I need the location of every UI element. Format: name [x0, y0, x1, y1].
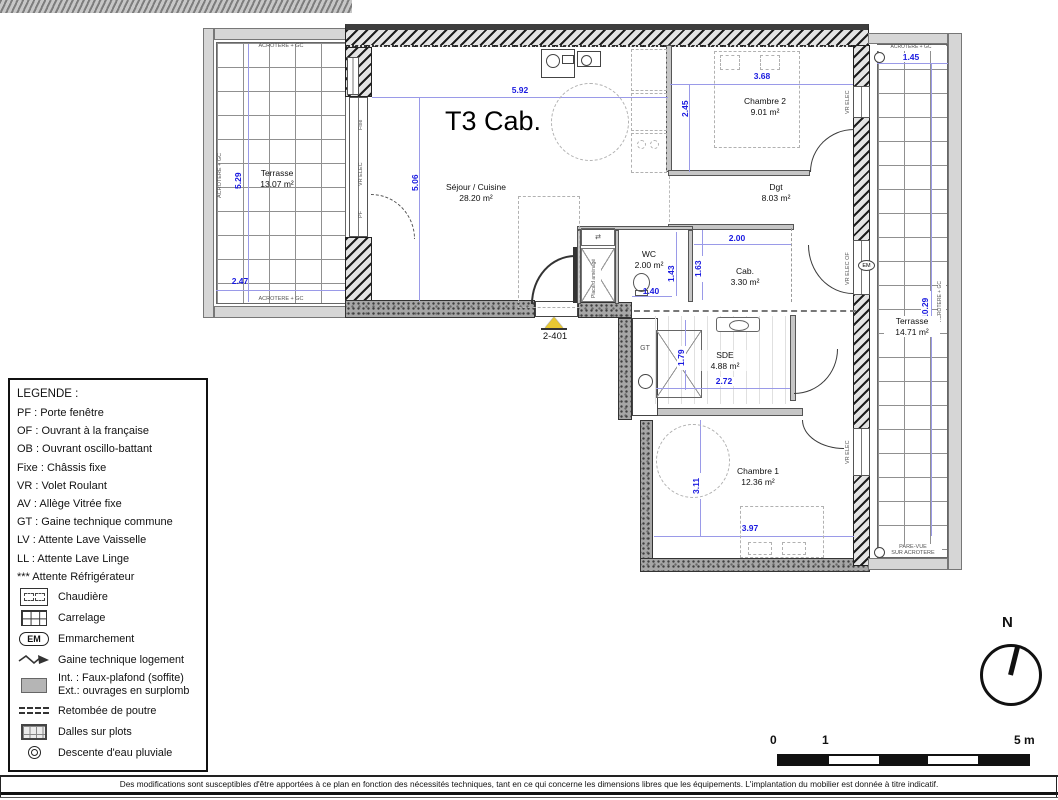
pf-door-swing: [371, 194, 415, 239]
west-terrace-parapet-top: [214, 28, 348, 40]
dim-chambre2-h: 2.45: [681, 96, 690, 122]
west-small-window: [347, 57, 359, 95]
boiler: [541, 49, 575, 78]
west-terrace-parapet-left: [203, 28, 214, 318]
footer-left-tick: [0, 776, 1, 797]
hob-burner: [637, 140, 646, 149]
wall-west-gt: [618, 318, 632, 420]
wall-east: [853, 45, 870, 566]
east-terrace-label: Terrasse 14.71 m²: [884, 316, 940, 337]
legend-item: PF : Porte fenêtre: [17, 404, 199, 422]
wall-south-chambre1: [640, 558, 870, 572]
dim-line: [676, 232, 677, 296]
cab-label: Cab. 3.30 m²: [722, 266, 768, 287]
pillow: [760, 55, 780, 70]
soffit-zone: [518, 196, 580, 308]
chambre1-window: [853, 428, 870, 476]
sejour-dgt-soffit-line: [669, 176, 670, 222]
scale-bar: [777, 754, 1030, 766]
dim-sejour-h: 5.06: [411, 168, 422, 198]
duct-icon: [17, 653, 51, 666]
dim-line: [632, 296, 672, 297]
dim-line: [877, 63, 948, 64]
kitchen-unit-2: [631, 93, 667, 131]
east-terrace-parapet-right: [948, 33, 962, 570]
dim-line: [694, 244, 791, 245]
terrace-door-label: VR ELEC OF: [845, 248, 853, 290]
north-label: N: [1002, 614, 1013, 631]
legend-symbol-row: EM Emmarchement: [17, 628, 199, 649]
legend-symbol-row: Descente d'eau pluviale: [17, 742, 199, 763]
wall-sde-chambre1: [653, 408, 803, 416]
placard-shelf: ⇄: [581, 228, 615, 246]
legend-box: LEGENDE : PF : Porte fenêtre OF : Ouvran…: [8, 378, 208, 772]
dim-sde-h: 1.79: [677, 346, 686, 370]
legend-symbol-row: Gaine technique logement: [17, 649, 199, 670]
legend-item: LV : Attente Lave Vaisselle: [17, 531, 199, 549]
legend-item: *** Attente Réfrigérateur: [17, 568, 199, 586]
em-badge: EM: [858, 260, 875, 271]
wc-label: WC 2.00 m²: [628, 249, 670, 270]
footer-top-rule: [0, 775, 1058, 777]
step-icon: EM: [17, 632, 51, 646]
chambre2-window-label: VR ELEC: [845, 84, 853, 120]
dim-line: [372, 97, 668, 98]
downpipe-symbol: [638, 374, 653, 389]
pare-vue-label: PARE-VUE SUR ACROTERE: [884, 544, 942, 557]
legend-symbol-row: Dalles sur plots: [17, 721, 199, 742]
acrotere-label-east: ACROTERE + GC: [876, 45, 946, 51]
pillow: [782, 542, 806, 555]
wall-south-entry: [578, 302, 632, 318]
chambre1-door-swing: [802, 420, 844, 449]
kitchen-sink: [577, 51, 601, 67]
beam-dashed-line: [634, 310, 856, 312]
hob-burner: [650, 140, 659, 149]
chambre1-label: Chambre 1 12.36 m²: [726, 466, 790, 487]
washbasin: [716, 317, 760, 332]
wall-placard-wc: [615, 230, 619, 304]
footer-disclaimer: Des modifications sont susceptibles d'êt…: [0, 779, 1058, 789]
acrotere-label-left: ACROTERE + GC: [217, 150, 225, 200]
pillow: [748, 542, 772, 555]
acrotere-label-bottom: ACROTERE + GC: [222, 296, 340, 302]
legend-symbol-row: Chaudière: [17, 586, 199, 607]
dim-cab-w: 2.00: [723, 234, 751, 243]
window-label-pf: PF: [358, 206, 366, 222]
wall-north: [345, 24, 869, 47]
dgt-label: Dgt 8.03 m²: [750, 182, 802, 203]
dim-line: [931, 64, 932, 536]
dim-sde-w: 2.72: [710, 377, 738, 386]
window-label-fixe: Fixe: [358, 112, 366, 138]
pillow: [720, 55, 740, 70]
dim-line: [419, 97, 420, 301]
scale-tick-1: 1: [822, 733, 829, 747]
legend-symbol-row: Retombée de poutre: [17, 700, 199, 721]
legend-symbol-row: Carrelage: [17, 607, 199, 628]
beam-icon: [17, 707, 51, 714]
kitchen-unit-1: [631, 49, 667, 91]
chambre2-window: [853, 86, 870, 118]
cab-soffit-line: [791, 228, 792, 302]
acrotere-label-top: ACROTERE + GC: [222, 43, 340, 49]
dim-line: [216, 290, 346, 291]
unit-number: 2-401: [534, 331, 576, 343]
tiling-icon: [17, 610, 51, 626]
gt-label: GT: [634, 345, 656, 353]
legend-item: VR : Volet Roulant: [17, 477, 199, 495]
dim-wc-w: 1.40: [638, 287, 664, 296]
legend-item: AV : Allège Vitrée fixe: [17, 495, 199, 513]
window-label-vr-elec: VR ELEC: [358, 156, 366, 192]
dim-cab-h: 1.63: [694, 256, 703, 282]
west-terrace-label: Terrasse 13.07 m²: [246, 168, 308, 189]
entry-marker-line: [541, 328, 567, 330]
entry-marker-triangle: [545, 317, 563, 328]
downpipe-symbol: [874, 547, 885, 558]
soffit-icon: [17, 678, 51, 693]
legend-item: Fixe : Châssis fixe: [17, 459, 199, 477]
footer-bottom-rule: [0, 792, 1058, 795]
sde-label: SDE 4.88 m²: [700, 350, 750, 371]
west-terrace-parapet-bottom: [214, 306, 348, 318]
chambre1-round-furniture: [656, 424, 730, 498]
placard-label: Placard aménagé: [592, 260, 601, 298]
sde-door-swing: [794, 349, 838, 394]
chambre1-window-label: VR ELEC: [845, 432, 853, 472]
chambre2-door-swing: [810, 129, 854, 172]
dim-terrace-west-w: 2.47: [226, 277, 254, 286]
footer-thin-rule: [0, 797, 1058, 798]
east-terrace-parapet-bottom: [868, 558, 948, 570]
scale-tick-5: 5 m: [1014, 733, 1035, 747]
east-terrace-parapet-top: [868, 33, 948, 44]
downpipe-icon: [17, 746, 51, 759]
legend-item: OB : Ouvrant oscillo-battant: [17, 440, 199, 458]
dim-wc-h: 1.43: [667, 262, 676, 286]
legend-item: OF : Ouvrant à la française: [17, 422, 199, 440]
floor-plan: ACROTERE + GC ACROTERE + GC ACROTERE + G…: [0, 0, 1058, 800]
wall-west-chambre1: [640, 420, 653, 566]
wall-south-sejour: [345, 300, 535, 318]
dining-table: [551, 83, 629, 161]
footer-right-tick: [1056, 776, 1057, 797]
downpipe-symbol: [874, 52, 885, 63]
dim-terrace-west-h: 5.29: [234, 168, 244, 194]
plan-title: T3 Cab.: [445, 106, 541, 137]
scale-tick-0: 0: [770, 733, 777, 747]
top-edge-band: [0, 0, 352, 13]
dim-line: [656, 388, 790, 389]
kitchen-unit-3: [631, 133, 667, 173]
legend-title: LEGENDE :: [17, 385, 199, 404]
legend-item: LL : Attente Lave Linge: [17, 550, 199, 568]
legend-symbol-row: Int. : Faux-plafond (soffite)Ext.: ouvra…: [17, 670, 199, 700]
boiler-icon: [17, 588, 51, 606]
dim-sejour-w: 5.92: [504, 86, 536, 95]
slabs-icon: [17, 724, 51, 740]
sejour-label: Séjour / Cuisine 28.20 m²: [426, 182, 526, 203]
legend-item: GT : Gaine technique commune: [17, 513, 199, 531]
dim-terrace-east-w: 1.45: [896, 53, 926, 62]
